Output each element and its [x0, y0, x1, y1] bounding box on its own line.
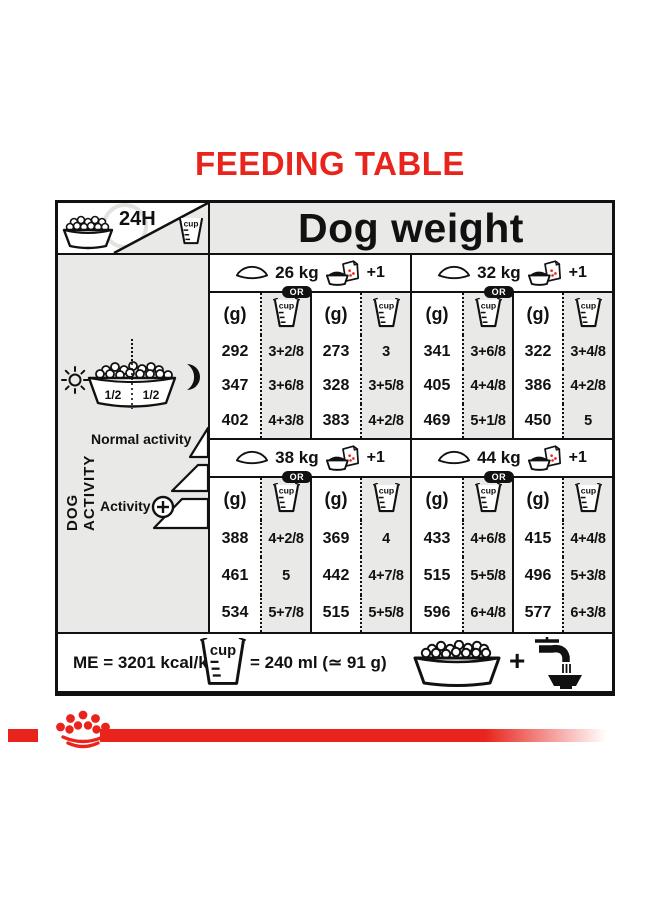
feeding-table-page: FEEDING TABLE 24H	[0, 0, 660, 900]
cup-unit-header: cup	[462, 478, 512, 520]
cups-value-cell: 4	[360, 520, 410, 557]
cups-value-cell: 4+6/8	[462, 520, 512, 557]
svg-text:cup: cup	[278, 486, 293, 496]
plus-icon: +	[509, 645, 525, 677]
svg-text:cup: cup	[278, 301, 293, 311]
svg-text:cup: cup	[480, 486, 495, 496]
cups-value-cell: 4+2/8	[562, 369, 612, 403]
dog-weight-value: 38 kg	[275, 448, 318, 468]
dog-weight-value: 44 kg	[477, 448, 520, 468]
grams-value-cell: 415	[512, 520, 562, 557]
bowl-and-pouch-icon	[325, 445, 361, 472]
weight-label-group: 38 kgOR	[275, 448, 318, 468]
grams-unit-header: (g)	[412, 293, 462, 335]
grams-value-cell: 450	[512, 404, 562, 438]
cups-value-cell: 5	[260, 557, 310, 594]
weight-group-body: (g) cup (g) cup 3884+2/8369446154424+7/8…	[210, 478, 410, 632]
cup-unit-header: cup	[562, 293, 612, 335]
grams-value-cell: 469	[412, 404, 462, 438]
plus-one-label: +1	[569, 449, 587, 467]
cup-unit-header: cup	[260, 478, 310, 520]
grams-value-cell: 341	[412, 335, 462, 369]
weight-group-body: (g) cup (g) cup 2923+2/827333473+6/83283…	[210, 293, 410, 438]
or-badge: OR	[282, 286, 313, 298]
or-badge: OR	[282, 471, 313, 483]
cups-value-cell: 3+6/8	[462, 335, 512, 369]
grams-unit-header: (g)	[310, 293, 360, 335]
empty-bowl-icon	[235, 264, 269, 282]
grams-value-cell: 322	[512, 335, 562, 369]
grams-unit-header: (g)	[512, 293, 562, 335]
cups-value-cell: 3+4/8	[562, 335, 612, 369]
grams-unit-header: (g)	[512, 478, 562, 520]
grams-value-cell: 388	[210, 520, 260, 557]
cups-value-cell: 6+4/8	[462, 595, 512, 632]
cup-icon: cup	[200, 638, 246, 688]
cup-unit-header: cup	[462, 293, 512, 335]
empty-bowl-icon	[235, 449, 269, 467]
svg-text:cup: cup	[184, 218, 199, 228]
water-tap-icon	[532, 635, 584, 690]
dog-weight-value: 32 kg	[477, 263, 520, 283]
or-badge: OR	[484, 286, 515, 298]
grams-value-cell: 442	[310, 557, 360, 594]
weight-group-38kg: 38 kgOR +1 (g) cup (g) cup 3884+2/836944…	[210, 438, 410, 632]
cups-value-cell: 6+3/8	[562, 595, 612, 632]
grams-value-cell: 369	[310, 520, 360, 557]
grams-value-cell: 515	[412, 557, 462, 594]
weight-group-26kg: 26 kgOR +1 (g) cup (g) cup 2923+2/827333…	[210, 255, 410, 438]
grams-value-cell: 515	[310, 595, 360, 632]
grams-unit-header: (g)	[412, 478, 462, 520]
cup-icon: cup	[178, 216, 204, 247]
plus-circle-icon	[150, 494, 176, 520]
bowl-and-pouch-icon	[325, 260, 361, 287]
weight-group-header: 32 kgOR +1	[412, 255, 612, 293]
dog-weight-header-cell: Dog weight	[210, 203, 612, 255]
weight-group-header: 26 kgOR +1	[210, 255, 410, 293]
page-title: FEEDING TABLE	[0, 145, 660, 183]
moon-icon	[180, 363, 202, 391]
or-badge: OR	[484, 471, 515, 483]
weight-label-group: 32 kgOR	[477, 263, 520, 283]
weight-group-body: (g) cup (g) cup 4334+6/84154+4/85155+5/8…	[412, 478, 612, 632]
cups-value-cell: 3+5/8	[360, 369, 410, 403]
cups-value-cell: 3+6/8	[260, 369, 310, 403]
grams-value-cell: 496	[512, 557, 562, 594]
cup-unit-header: cup	[260, 293, 310, 335]
activity-label: Activity	[100, 498, 151, 514]
weight-group-44kg: 44 kgOR +1 (g) cup (g) cup 4334+6/84154+…	[410, 438, 612, 632]
grams-value-cell: 347	[210, 369, 260, 403]
grams-value-cell: 461	[210, 557, 260, 594]
cups-value-cell: 4+2/8	[260, 520, 310, 557]
grams-value-cell: 405	[412, 369, 462, 403]
cup-icon: cup	[475, 483, 502, 515]
cups-value-cell: 5+5/8	[462, 557, 512, 594]
bowl-and-pouch-icon	[527, 260, 563, 287]
grams-value-cell: 577	[512, 595, 562, 632]
weight-group-header: 44 kgOR +1	[412, 440, 612, 478]
cups-value-cell: 4+2/8	[360, 404, 410, 438]
dog-weight-value: 26 kg	[275, 263, 318, 283]
cup-icon: cup	[575, 483, 602, 515]
grams-unit-header: (g)	[210, 293, 260, 335]
svg-text:cup: cup	[378, 301, 393, 311]
grams-value-cell: 386	[512, 369, 562, 403]
metabolizable-energy-label: ME = 3201 kcal/kg	[73, 653, 218, 673]
grams-value-cell: 273	[310, 335, 360, 369]
weight-label-group: 26 kgOR	[275, 263, 318, 283]
svg-text:cup: cup	[210, 643, 236, 659]
cups-value-cell: 4+3/8	[260, 404, 310, 438]
grams-value-cell: 596	[412, 595, 462, 632]
cups-value-cell: 5+3/8	[562, 557, 612, 594]
bowl-and-pouch-icon	[527, 445, 563, 472]
cups-value-cell: 5+5/8	[360, 595, 410, 632]
grams-unit-header: (g)	[310, 478, 360, 520]
empty-bowl-icon	[437, 264, 471, 282]
weight-group-header: 38 kgOR +1	[210, 440, 410, 478]
svg-text:cup: cup	[580, 486, 595, 496]
cups-value-cell: 5+7/8	[260, 595, 310, 632]
cups-value-cell: 3	[360, 335, 410, 369]
cups-value-cell: 4+7/8	[360, 557, 410, 594]
plus-one-label: +1	[569, 264, 587, 282]
cup-icon: cup	[575, 298, 602, 330]
cup-unit-header: cup	[360, 478, 410, 520]
brand-band-left	[8, 729, 38, 742]
cups-value-cell: 4+4/8	[462, 369, 512, 403]
feeding-table: 24H cup Dog weight	[55, 200, 615, 696]
corner-cell: 24H cup	[58, 203, 210, 255]
weight-group-body: (g) cup (g) cup 3413+6/83223+4/84054+4/8…	[412, 293, 612, 438]
brand-band-right	[100, 729, 606, 742]
dog-weight-title: Dog weight	[298, 205, 524, 252]
grams-value-cell: 402	[210, 404, 260, 438]
grams-unit-header: (g)	[210, 478, 260, 520]
table-footer: ME = 3201 kcal/kg cup = 240 ml (≃ 91 g)	[58, 632, 612, 689]
half-portions-bowl-icon: 1/2 1/2	[84, 361, 180, 415]
cups-value-cell: 5	[562, 404, 612, 438]
cups-value-cell: 4+4/8	[562, 520, 612, 557]
cup-unit-header: cup	[360, 293, 410, 335]
weight-group-32kg: 32 kgOR +1 (g) cup (g) cup 3413+6/83223+…	[410, 255, 612, 438]
weight-label-group: 44 kgOR	[477, 448, 520, 468]
svg-text:1/2: 1/2	[105, 388, 122, 402]
duration-label: 24H	[119, 208, 156, 231]
grams-value-cell: 383	[310, 404, 360, 438]
cups-value-cell: 5+1/8	[462, 404, 512, 438]
cup-icon: cup	[273, 483, 300, 515]
plus-one-label: +1	[367, 449, 385, 467]
empty-bowl-icon	[437, 449, 471, 467]
kibble-bowl-icon	[410, 640, 504, 688]
cup-icon: cup	[273, 298, 300, 330]
dog-activity-sidebar: 1/2 1/2 DOG ACTIVITY Normal activity	[58, 255, 210, 632]
cup-unit-header: cup	[562, 478, 612, 520]
svg-text:cup: cup	[580, 301, 595, 311]
grams-value-cell: 433	[412, 520, 462, 557]
cups-value-cell: 3+2/8	[260, 335, 310, 369]
crown-logo	[54, 709, 112, 755]
grams-value-cell: 534	[210, 595, 260, 632]
kibble-bowl-icon	[61, 209, 115, 251]
grams-value-cell: 292	[210, 335, 260, 369]
cup-icon: cup	[475, 298, 502, 330]
cup-equivalence-label: = 240 ml (≃ 91 g)	[250, 653, 387, 673]
cup-icon: cup	[373, 483, 400, 515]
grams-value-cell: 328	[310, 369, 360, 403]
cup-icon: cup	[373, 298, 400, 330]
plus-one-label: +1	[367, 264, 385, 282]
svg-text:cup: cup	[378, 486, 393, 496]
svg-text:1/2: 1/2	[143, 388, 160, 402]
svg-text:cup: cup	[480, 301, 495, 311]
